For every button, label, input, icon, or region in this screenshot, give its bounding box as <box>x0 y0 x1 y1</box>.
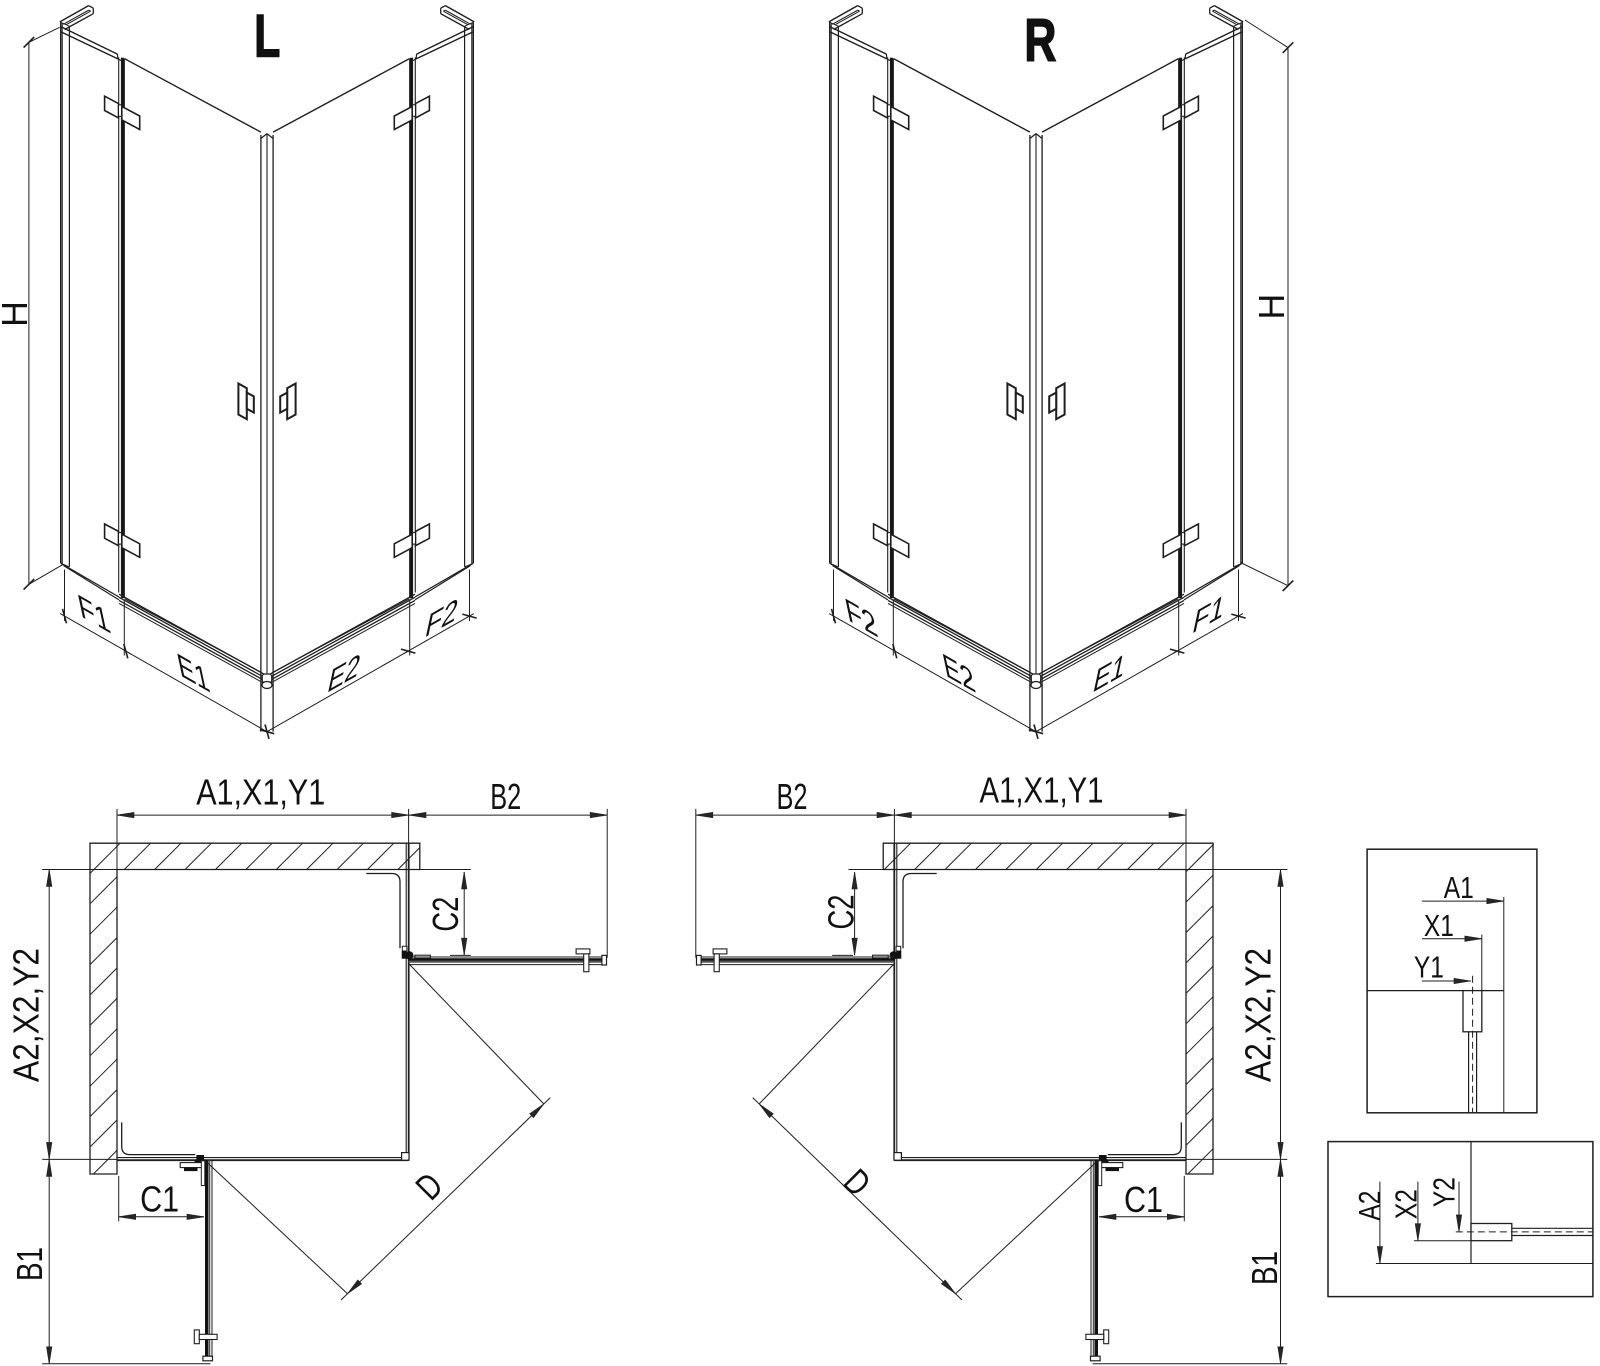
svg-text:B2: B2 <box>490 776 521 817</box>
svg-text:A2: A2 <box>1352 1191 1387 1221</box>
svg-text:A1,X1,Y1: A1,X1,Y1 <box>980 770 1104 811</box>
svg-text:H: H <box>0 301 35 327</box>
svg-text:C1: C1 <box>140 1178 179 1219</box>
svg-text:B2: B2 <box>777 776 808 817</box>
svg-text:B1: B1 <box>1244 1251 1285 1285</box>
svg-text:Y2: Y2 <box>1427 1177 1462 1207</box>
svg-text:Y1: Y1 <box>1414 950 1444 985</box>
svg-text:C2: C2 <box>425 897 466 932</box>
svg-text:A1: A1 <box>1444 870 1474 905</box>
svg-text:X1: X1 <box>1424 908 1454 943</box>
svg-text:C2: C2 <box>820 895 861 930</box>
svg-text:C1: C1 <box>1124 1179 1163 1220</box>
svg-text:A1,X1,Y1: A1,X1,Y1 <box>196 771 325 812</box>
svg-text:L: L <box>254 3 280 70</box>
svg-text:B1: B1 <box>9 1247 50 1281</box>
svg-text:A2,X2,Y2: A2,X2,Y2 <box>1237 948 1278 1082</box>
svg-text:H: H <box>1251 294 1292 320</box>
svg-text:X2: X2 <box>1389 1189 1424 1219</box>
svg-text:A2,X2,Y2: A2,X2,Y2 <box>6 948 47 1082</box>
svg-text:R: R <box>1024 7 1056 74</box>
